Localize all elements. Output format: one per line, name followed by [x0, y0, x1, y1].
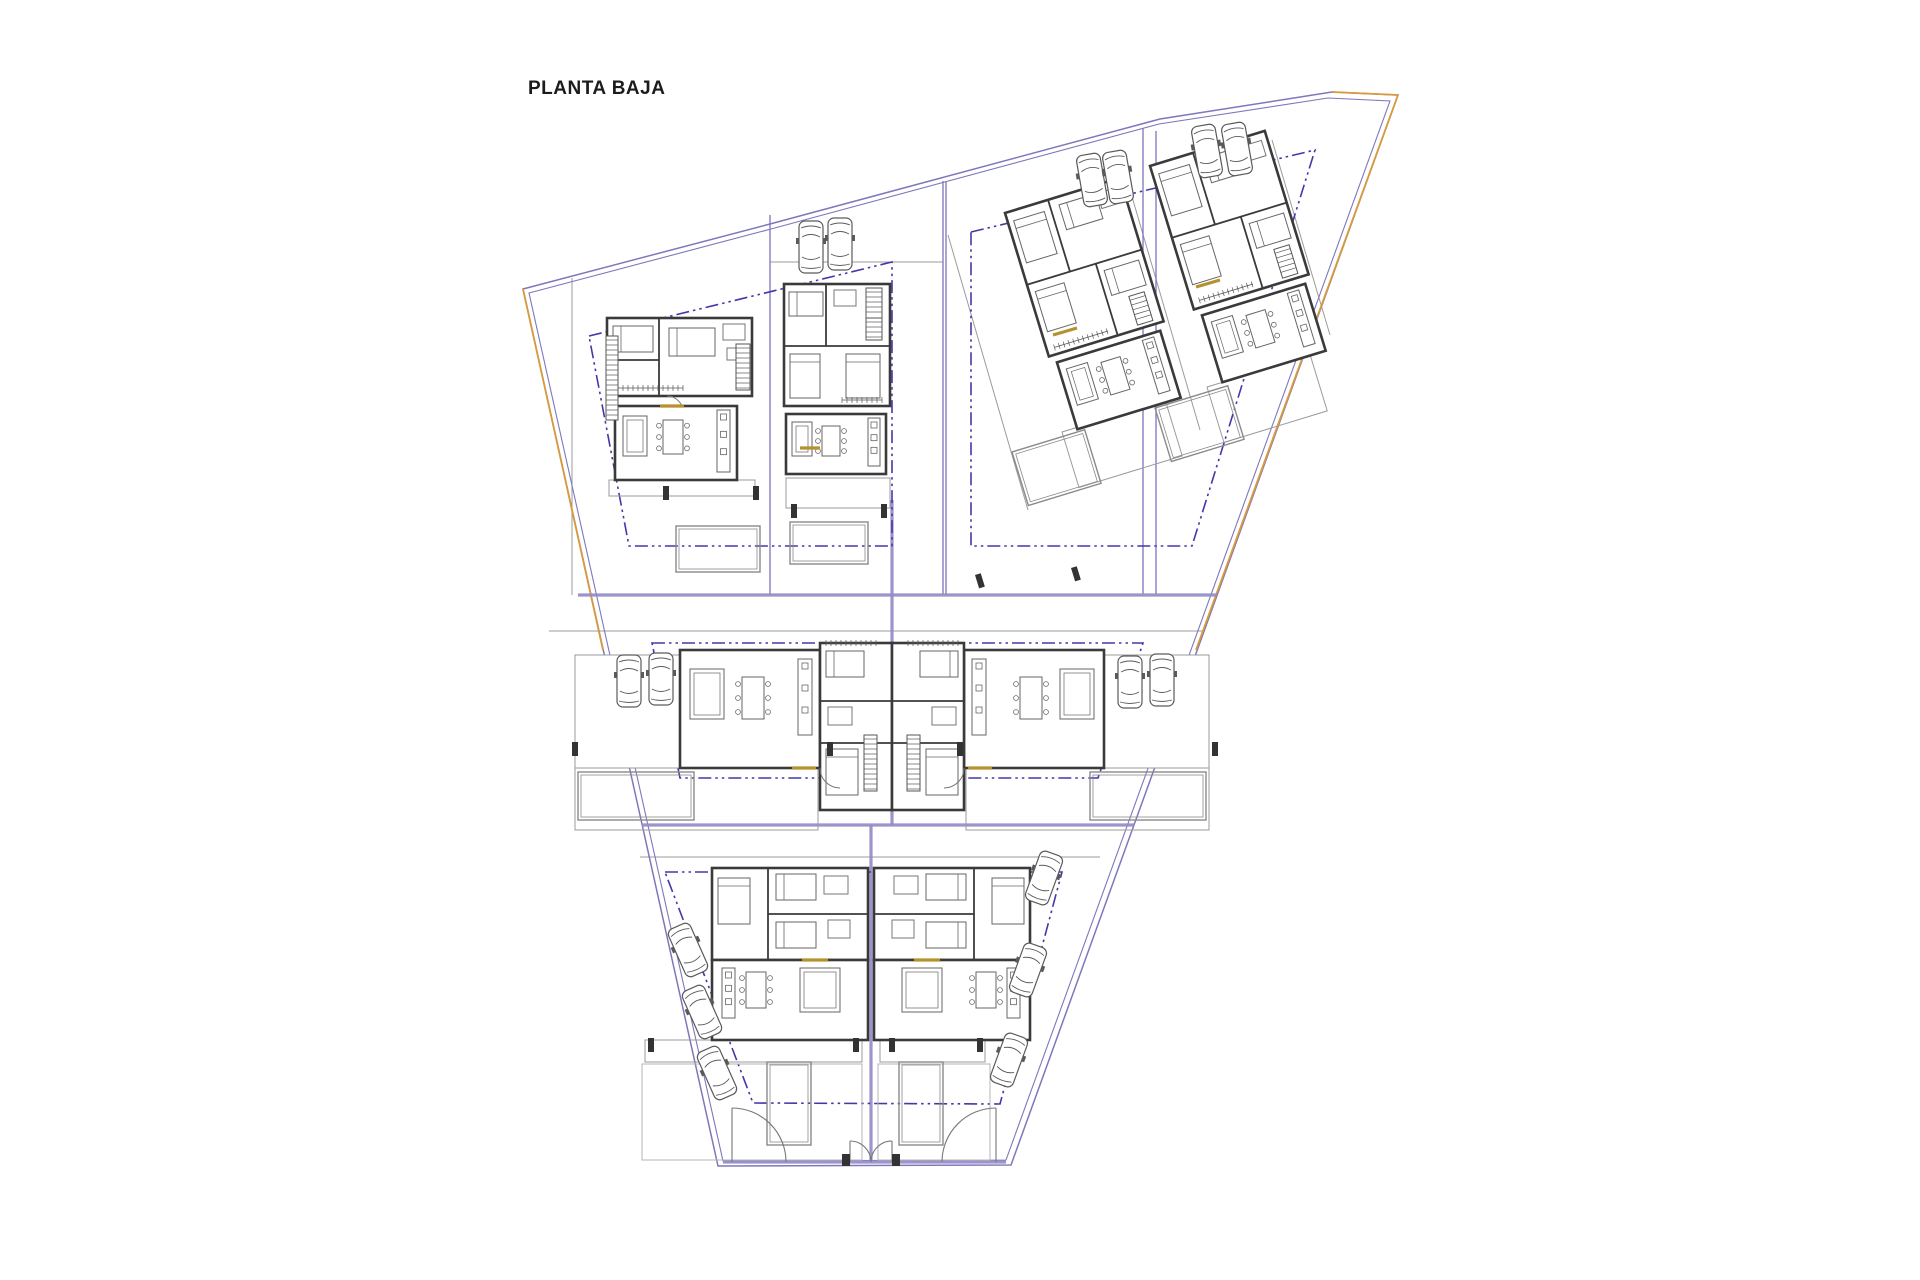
car-icon: [796, 221, 826, 273]
pool-outline: [790, 522, 868, 564]
terrace-post: [975, 573, 985, 588]
fixture-box: [932, 707, 956, 725]
pool: [1012, 430, 1101, 506]
stairs: [907, 735, 920, 791]
house-1: [607, 318, 752, 480]
car-mirror-right: [1142, 673, 1145, 679]
pool-inner: [679, 529, 757, 569]
dining-table: [822, 426, 840, 456]
bed: [718, 878, 750, 924]
terrace-post: [663, 486, 669, 500]
car-mirror-left: [825, 235, 828, 241]
plot-dividers-thick: [578, 500, 1217, 1162]
terrace: [880, 1040, 985, 1062]
car-icon: [646, 653, 676, 705]
terrace-outline: [786, 478, 890, 508]
terrace-post: [1071, 566, 1081, 581]
stairs: [864, 735, 877, 791]
car-mirror-right: [673, 670, 676, 676]
fixture-box: [892, 920, 914, 938]
house-8: [874, 868, 1030, 1040]
terrace-post: [977, 1038, 983, 1052]
bed: [790, 354, 820, 398]
terrace: [786, 478, 890, 508]
pool-inner: [1016, 434, 1098, 502]
terrace-post: [648, 1038, 654, 1052]
terrace-outline: [575, 768, 818, 830]
terrace: [609, 480, 755, 496]
fixture-box: [834, 290, 856, 306]
car-body: [649, 653, 673, 705]
car-body: [1150, 654, 1174, 706]
fixture-box: [824, 876, 848, 894]
house-7: [712, 868, 868, 1040]
bed: [789, 292, 823, 316]
post: [1212, 742, 1218, 756]
post: [975, 573, 985, 588]
dining-table: [746, 972, 766, 1008]
bed: [613, 326, 653, 352]
post: [572, 742, 578, 756]
pool-inner: [793, 525, 865, 561]
stairs: [866, 288, 882, 318]
car-mirror-left: [796, 238, 799, 244]
terrace-post: [753, 486, 759, 500]
pool: [676, 526, 760, 572]
post: [663, 486, 669, 500]
car-body: [828, 218, 852, 270]
car-body: [617, 655, 641, 707]
kitchen-counter: [868, 418, 880, 466]
terrace: [645, 1040, 862, 1062]
gate-post: [892, 1154, 900, 1166]
post: [881, 504, 887, 518]
site-plan-drawing: [0, 0, 1920, 1280]
bed: [920, 651, 958, 677]
kitchen-counter: [972, 659, 986, 735]
car-icon: [1115, 656, 1145, 708]
car-icon: [825, 218, 855, 270]
terrace-post: [881, 504, 887, 518]
car-mirror-right: [852, 235, 855, 241]
terrace-outline: [880, 1040, 985, 1062]
post: [1071, 566, 1081, 581]
car-mirror-right: [1174, 671, 1177, 677]
gate-arc: [871, 1141, 892, 1162]
post: [977, 1038, 983, 1052]
post: [648, 1038, 654, 1052]
dining-table: [663, 420, 683, 454]
bed: [926, 749, 958, 795]
kitchen-counter: [798, 659, 812, 735]
sofa: [623, 416, 647, 456]
bed: [826, 651, 864, 677]
terrace-post: [827, 742, 833, 756]
post: [753, 486, 759, 500]
bed: [926, 922, 966, 948]
gates: [732, 1108, 996, 1162]
gate-post: [842, 1154, 850, 1166]
post: [827, 742, 833, 756]
fixture-box: [828, 707, 852, 725]
car-mirror-left: [614, 672, 617, 678]
sofa: [690, 669, 724, 719]
gate-arc: [850, 1141, 871, 1162]
post: [957, 742, 963, 756]
fixture-box: [894, 876, 918, 894]
plan-root: [523, 92, 1398, 1166]
pool-inner: [1093, 775, 1203, 817]
plot-line: [948, 235, 1028, 510]
terrace-outline: [609, 480, 755, 496]
dining-table: [1020, 677, 1042, 719]
floor-plan-page: PLANTA BAJA: [0, 0, 1920, 1280]
house-3: [1005, 178, 1186, 431]
bed: [669, 328, 715, 356]
kitchen-counter: [722, 968, 735, 1018]
car-body: [799, 221, 823, 273]
car-mirror-left: [1115, 673, 1118, 679]
bed: [992, 878, 1024, 924]
pool-outline: [1090, 772, 1206, 820]
terrace-post: [572, 742, 578, 756]
car-icon: [664, 920, 713, 980]
gate-arc: [942, 1108, 996, 1162]
exterior-stairs: [866, 288, 882, 318]
terrace-post: [853, 1038, 859, 1052]
terrace-post: [957, 742, 963, 756]
exterior-stairs: [606, 336, 618, 420]
gate-arc: [732, 1108, 786, 1162]
terrace-outline: [645, 1040, 862, 1062]
kitchen-counter: [717, 410, 730, 472]
post: [791, 504, 797, 518]
bed: [846, 354, 880, 398]
sofa: [800, 968, 840, 1012]
bed: [776, 874, 816, 900]
post: [853, 1038, 859, 1052]
bed: [926, 874, 966, 900]
pool: [790, 522, 868, 564]
sofa: [792, 422, 812, 456]
bed: [776, 922, 816, 948]
post: [889, 1038, 895, 1052]
car-mirror-right: [641, 672, 644, 678]
stairs: [606, 336, 618, 420]
car-body: [1118, 656, 1142, 708]
terrace-post: [1212, 742, 1218, 756]
terrace: [575, 768, 818, 830]
dining-table: [742, 677, 764, 719]
car-icon: [614, 655, 644, 707]
fixture-box: [828, 920, 850, 938]
terrace-post: [889, 1038, 895, 1052]
sofa: [1060, 669, 1094, 719]
car-icon: [1147, 654, 1177, 706]
car-mirror-left: [1147, 671, 1150, 677]
sofa: [902, 968, 942, 1012]
pool: [1090, 772, 1206, 820]
pool-outline: [676, 526, 760, 572]
fixture-box: [723, 324, 745, 340]
dining-table: [976, 972, 996, 1008]
site-boundary-orange: [1332, 92, 1398, 95]
terrace-post: [791, 504, 797, 518]
car-mirror-left: [646, 670, 649, 676]
